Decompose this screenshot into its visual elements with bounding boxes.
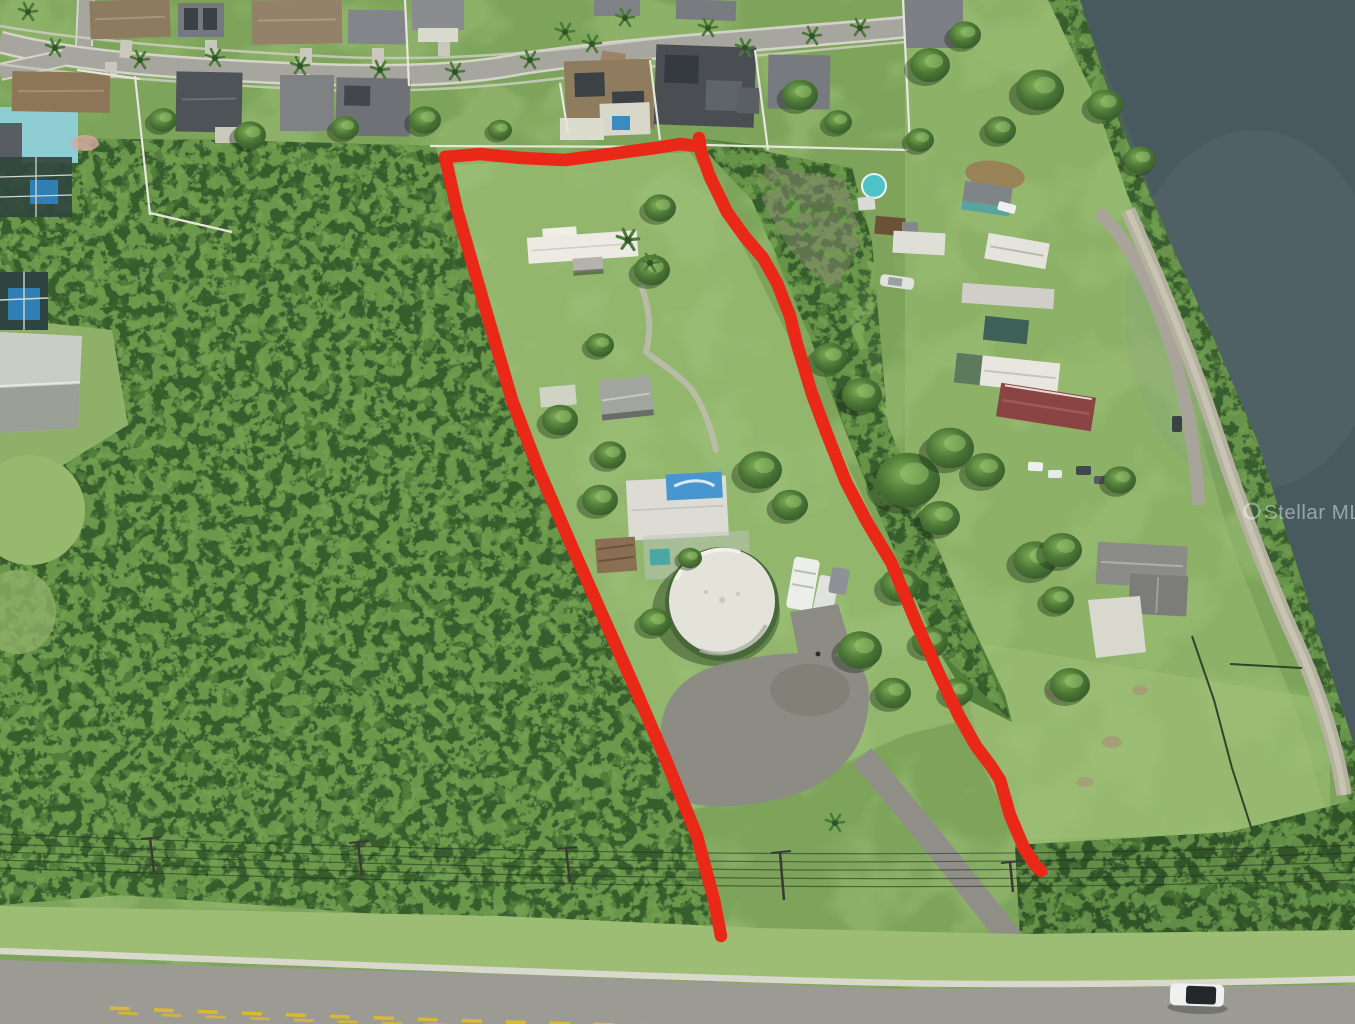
pink-garden-bed bbox=[71, 135, 99, 151]
canopy-tent bbox=[858, 196, 876, 210]
white-outbuilding bbox=[539, 384, 577, 407]
pool-screen-enclosure bbox=[0, 157, 72, 217]
round-kiddie-pool bbox=[862, 174, 886, 198]
car bbox=[1167, 983, 1228, 1015]
open-shelter bbox=[595, 537, 637, 574]
metal-shed bbox=[598, 375, 654, 420]
person-dot bbox=[816, 652, 821, 657]
small-pool bbox=[650, 548, 671, 565]
concrete-patio bbox=[1088, 596, 1146, 658]
aerial-photo: Stellar MLS bbox=[0, 0, 1355, 1024]
watermark-text: Stellar MLS bbox=[1264, 501, 1355, 524]
neighbor-pool-cage bbox=[0, 272, 48, 330]
metal-warehouse bbox=[0, 332, 82, 433]
blue-tarp bbox=[666, 472, 723, 501]
aerial-photo-canvas: Stellar MLS bbox=[0, 0, 1355, 1024]
two-story-house-2 bbox=[654, 44, 762, 128]
